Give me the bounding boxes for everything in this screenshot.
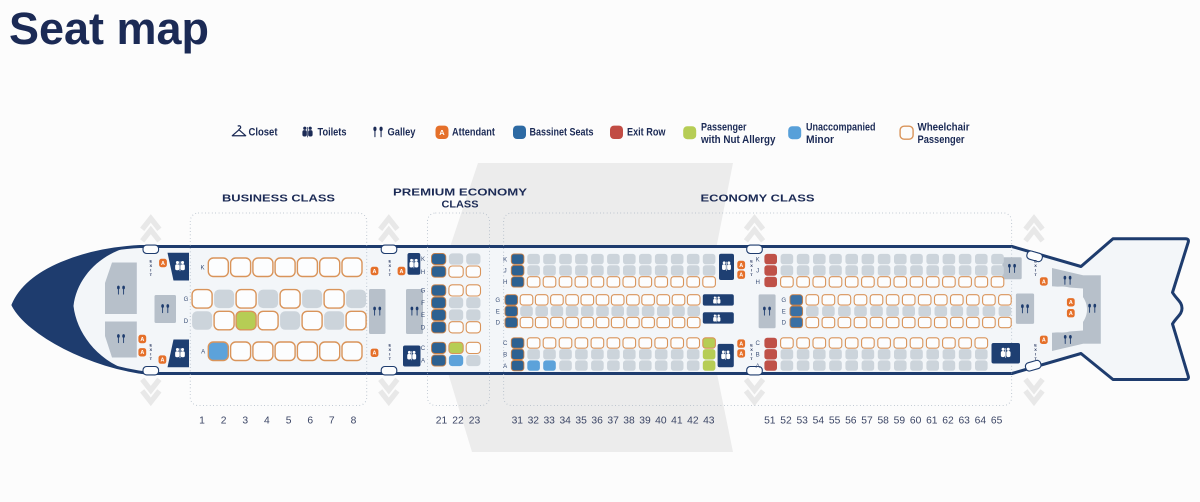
svg-text:E: E — [421, 312, 425, 319]
svg-text:K: K — [200, 264, 204, 271]
svg-text:37: 37 — [607, 416, 619, 427]
svg-text:Seat map: Seat map — [9, 3, 209, 54]
svg-text:54: 54 — [813, 416, 825, 427]
svg-text:51: 51 — [764, 416, 776, 427]
svg-text:A: A — [400, 269, 404, 275]
svg-text:55: 55 — [829, 416, 841, 427]
svg-text:B: B — [503, 352, 507, 359]
svg-text:62: 62 — [942, 416, 954, 427]
svg-text:D: D — [421, 325, 426, 332]
svg-text:40: 40 — [655, 416, 667, 427]
svg-text:39: 39 — [639, 416, 651, 427]
svg-text:22: 22 — [452, 416, 464, 427]
svg-text:C: C — [421, 345, 426, 352]
svg-text:35: 35 — [575, 416, 587, 427]
svg-text:65: 65 — [991, 416, 1003, 427]
svg-text:A: A — [1042, 279, 1046, 285]
svg-text:C: C — [503, 340, 508, 347]
svg-text:36: 36 — [591, 416, 603, 427]
svg-text:J: J — [504, 268, 507, 275]
svg-text:H: H — [755, 279, 759, 286]
svg-text:1: 1 — [199, 416, 205, 427]
svg-text:F: F — [421, 300, 425, 307]
svg-text:A: A — [739, 273, 743, 279]
svg-text:8: 8 — [351, 416, 357, 427]
svg-text:21: 21 — [436, 416, 448, 427]
svg-text:61: 61 — [926, 416, 938, 427]
svg-text:43: 43 — [703, 416, 715, 427]
svg-text:A: A — [439, 128, 445, 137]
svg-text:31: 31 — [512, 416, 524, 427]
svg-text:7: 7 — [329, 416, 335, 427]
svg-text:A: A — [1069, 300, 1073, 306]
svg-text:Passenger: Passenger — [918, 134, 966, 146]
svg-text:41: 41 — [671, 416, 683, 427]
svg-text:D: D — [496, 320, 501, 327]
svg-text:2: 2 — [221, 416, 227, 427]
svg-text:K: K — [421, 256, 425, 263]
svg-text:57: 57 — [861, 416, 873, 427]
svg-text:60: 60 — [910, 416, 922, 427]
svg-text:H: H — [421, 269, 425, 276]
svg-text:CLASS: CLASS — [442, 200, 479, 211]
svg-text:Bassinet Seats: Bassinet Seats — [530, 126, 594, 138]
svg-text:Toilets: Toilets — [318, 126, 347, 138]
svg-text:A: A — [1042, 338, 1046, 344]
svg-text:D: D — [782, 320, 787, 327]
svg-text:32: 32 — [528, 416, 540, 427]
svg-text:63: 63 — [958, 416, 970, 427]
svg-text:C: C — [755, 340, 760, 347]
svg-text:A: A — [140, 350, 144, 356]
svg-text:G: G — [495, 297, 500, 304]
svg-text:59: 59 — [894, 416, 906, 427]
svg-text:Galley: Galley — [388, 126, 416, 138]
svg-text:J: J — [756, 268, 759, 275]
svg-text:52: 52 — [780, 416, 792, 427]
svg-text:G: G — [421, 288, 426, 295]
svg-text:G: G — [184, 296, 189, 303]
svg-text:A: A — [739, 263, 743, 269]
svg-text:34: 34 — [559, 416, 571, 427]
svg-text:5: 5 — [286, 416, 292, 427]
svg-text:58: 58 — [877, 416, 889, 427]
svg-text:A: A — [739, 351, 743, 357]
svg-text:A: A — [140, 337, 144, 343]
svg-text:4: 4 — [264, 416, 270, 427]
svg-text:A: A — [373, 351, 377, 357]
svg-text:H: H — [503, 279, 507, 286]
svg-text:with Nut Allergy: with Nut Allergy — [700, 134, 775, 146]
svg-text:ECONOMY CLASS: ECONOMY CLASS — [701, 194, 815, 205]
svg-text:K: K — [756, 256, 760, 263]
svg-text:E: E — [782, 308, 786, 315]
svg-text:A: A — [373, 269, 377, 275]
svg-text:Wheelchair: Wheelchair — [918, 122, 971, 134]
svg-text:Unaccompanied: Unaccompanied — [806, 122, 876, 134]
svg-text:6: 6 — [307, 416, 313, 427]
svg-text:BUSINESS CLASS: BUSINESS CLASS — [222, 194, 335, 205]
svg-text:PREMIUM ECONOMY: PREMIUM ECONOMY — [393, 188, 527, 199]
svg-text:56: 56 — [845, 416, 857, 427]
svg-text:38: 38 — [623, 416, 635, 427]
svg-text:A: A — [161, 261, 165, 267]
svg-text:G: G — [781, 297, 786, 304]
svg-text:33: 33 — [543, 416, 555, 427]
svg-text:23: 23 — [469, 416, 481, 427]
svg-text:42: 42 — [687, 416, 699, 427]
svg-text:D: D — [184, 318, 189, 325]
svg-text:K: K — [503, 256, 507, 263]
svg-text:Exit Row: Exit Row — [627, 126, 666, 138]
svg-text:64: 64 — [975, 416, 987, 427]
svg-text:Attendant: Attendant — [452, 126, 495, 138]
svg-text:A: A — [739, 342, 743, 348]
svg-text:A: A — [160, 358, 164, 364]
svg-text:B: B — [756, 352, 760, 359]
svg-text:Minor: Minor — [806, 134, 835, 146]
svg-text:3: 3 — [242, 416, 248, 427]
svg-text:Closet: Closet — [249, 126, 278, 138]
svg-text:Passenger: Passenger — [701, 122, 747, 134]
svg-text:53: 53 — [796, 416, 808, 427]
svg-text:A: A — [1069, 311, 1073, 317]
svg-text:E: E — [496, 308, 500, 315]
